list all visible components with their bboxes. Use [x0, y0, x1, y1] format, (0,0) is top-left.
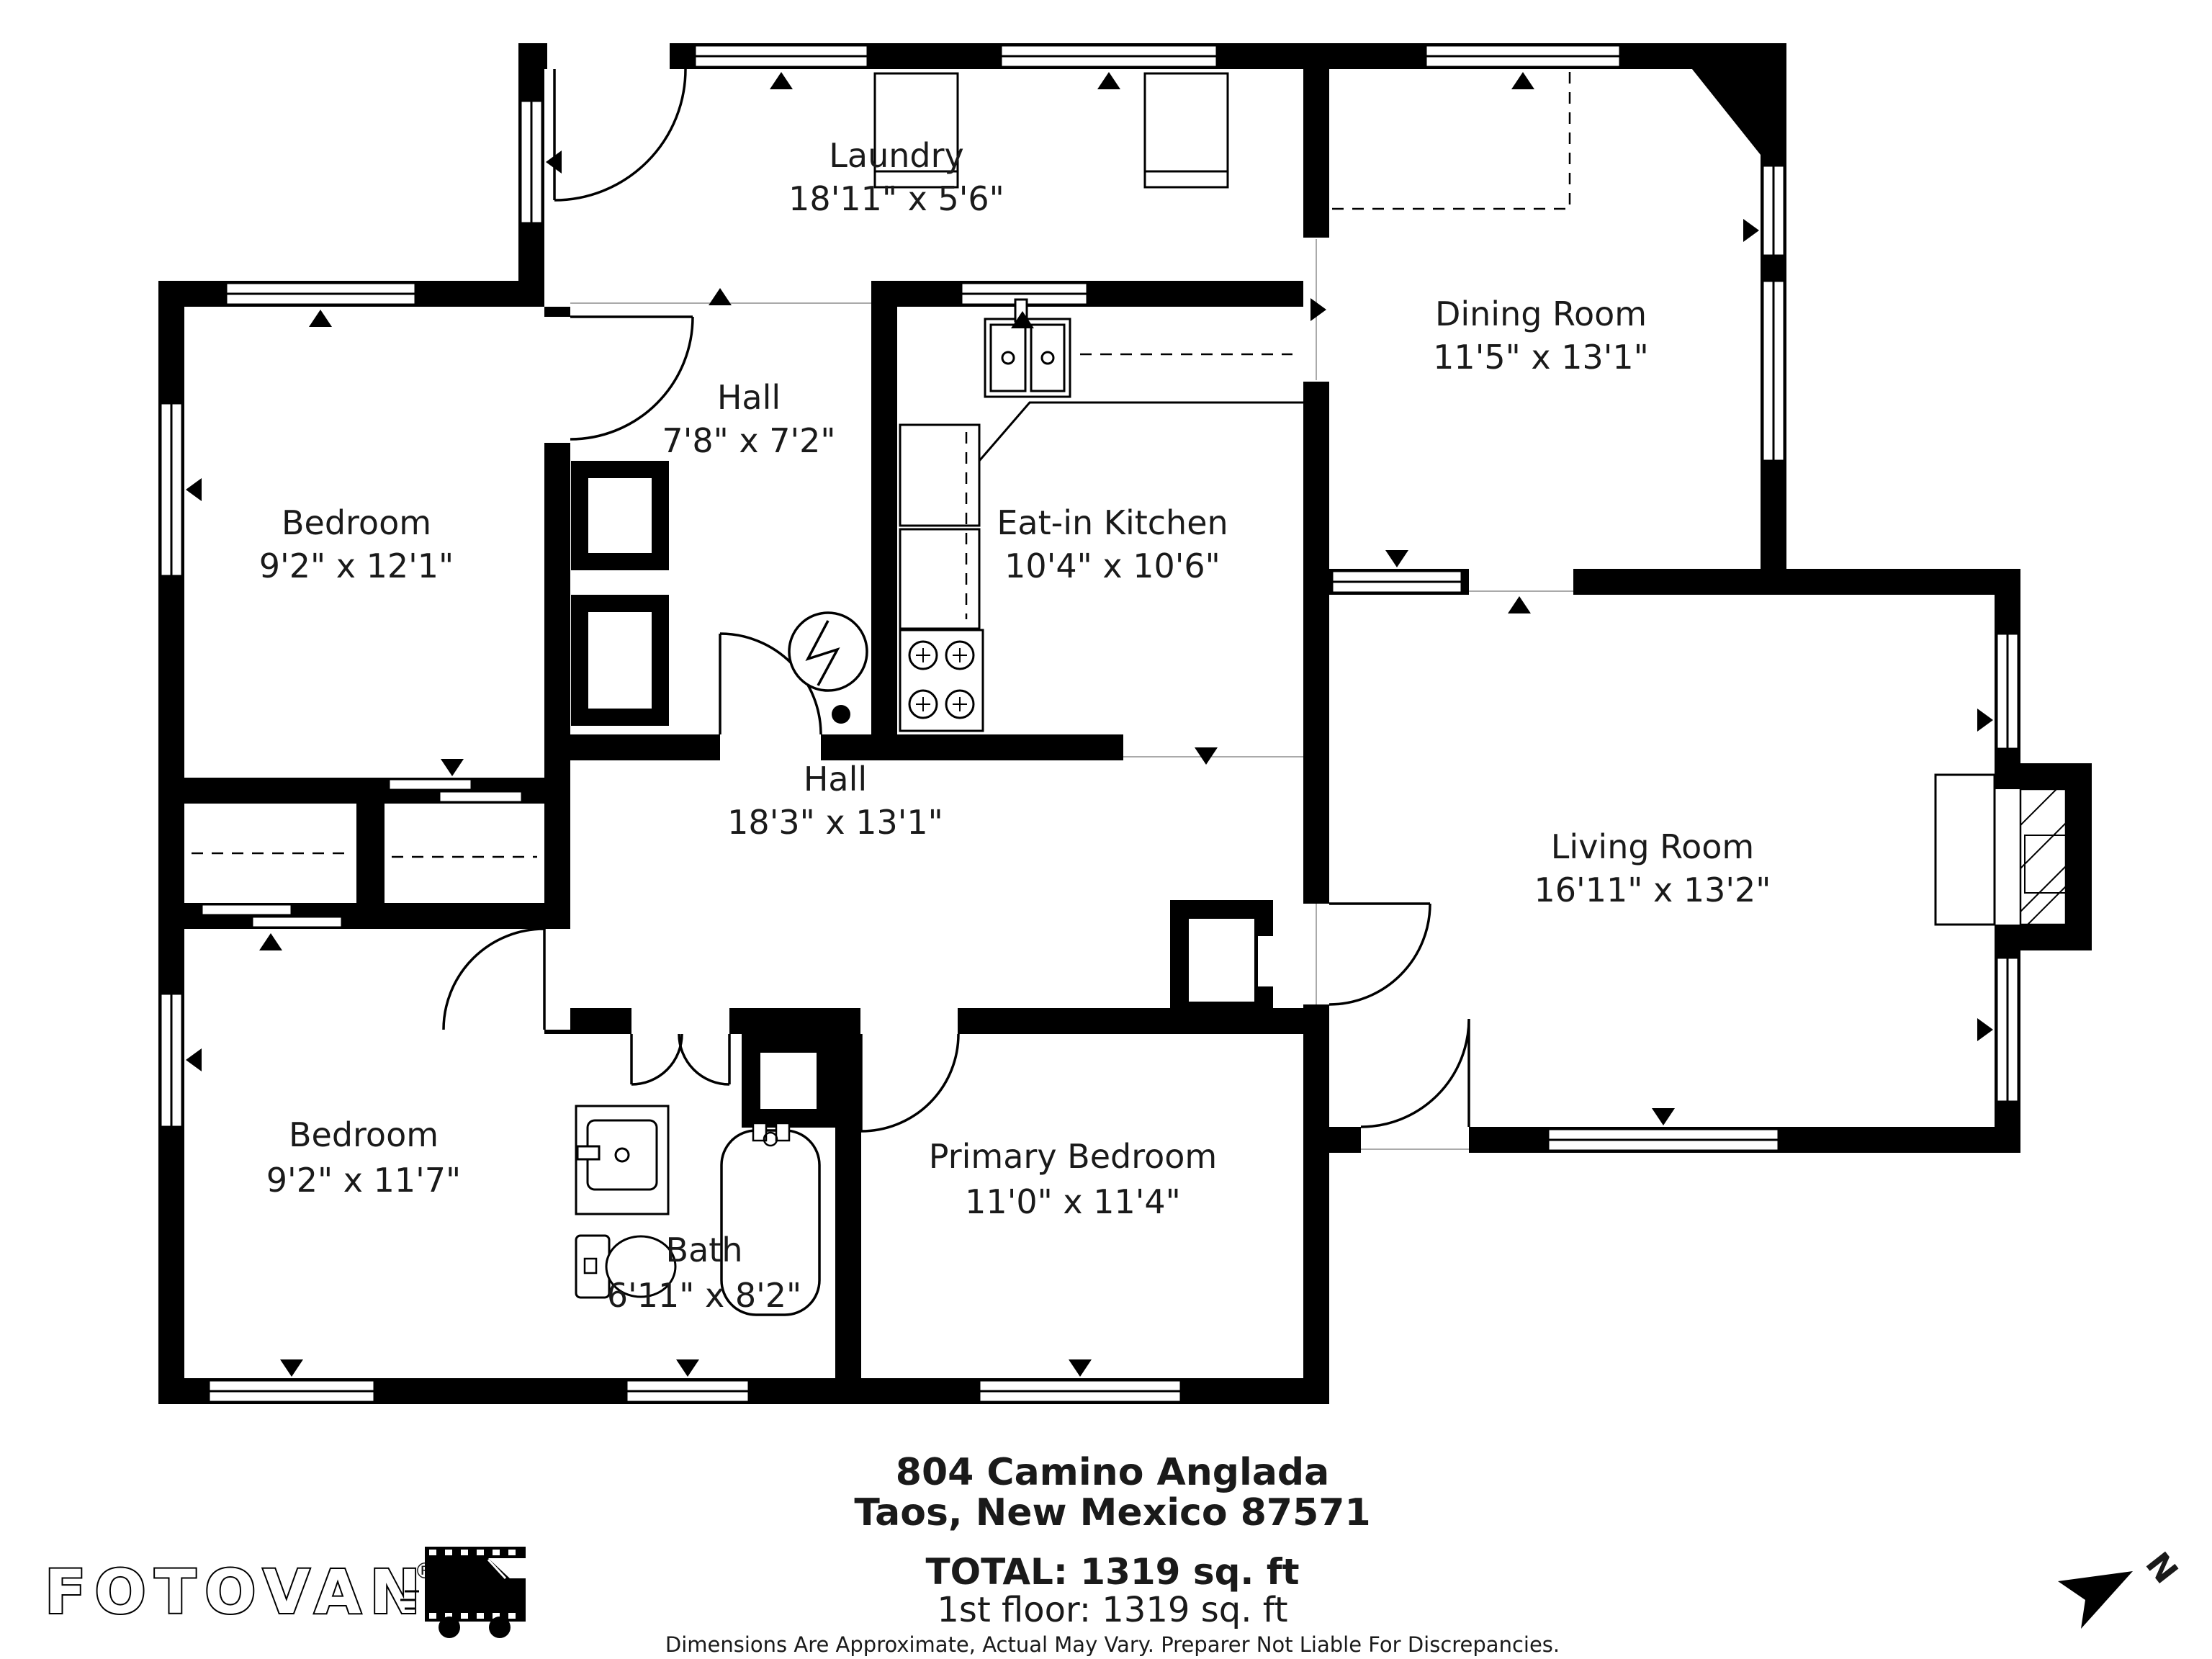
- floor-plan-page: Laundry 18'11" x 5'6" Dining Room 11'5" …: [0, 0, 2212, 1659]
- refrigerator-icon: [900, 529, 979, 629]
- dryer-icon: [1145, 73, 1228, 187]
- hall-closet: [580, 469, 660, 562]
- room-label-hall-main: Hall: [804, 760, 867, 799]
- primary-bedroom-door: [861, 1034, 958, 1131]
- wall-openings: [544, 43, 1469, 1153]
- linen-closet: [751, 1043, 826, 1118]
- disclaimer: Dimensions Are Approximate, Actual May V…: [665, 1632, 1560, 1657]
- room-label-living: Living Room: [1551, 827, 1754, 866]
- room-dims-hall-main: 18'3" x 13'1": [727, 803, 943, 842]
- room-dims-living: 16'11" x 13'2": [1534, 871, 1771, 909]
- room-dims-bath: 6'11" x 8'2": [607, 1276, 801, 1315]
- hall-closet: [580, 603, 660, 717]
- bedroom-lower-door: [444, 929, 544, 1030]
- kitchen-cabinet: [900, 425, 979, 526]
- water-heater-icon: [789, 613, 867, 691]
- room-label-kitchen: Eat-in Kitchen: [997, 503, 1228, 542]
- bath-door-left: [631, 1034, 682, 1084]
- room-label-laundry: Laundry: [829, 136, 963, 175]
- room-dims-bedroom-upper: 9'2" x 12'1": [259, 547, 454, 585]
- door-stop-dot: [832, 705, 850, 724]
- front-door: [1361, 1019, 1469, 1127]
- kitchen-counter: [979, 403, 1303, 461]
- room-dims-kitchen: 10'4" x 10'6": [1004, 547, 1220, 585]
- north-arrow-icon: [2058, 1571, 2133, 1629]
- address-line1: 804 Camino Anglada: [896, 1451, 1329, 1494]
- room-label-primary: Primary Bedroom: [929, 1137, 1217, 1176]
- fireplace-icon: [1935, 775, 2066, 925]
- north-label: N: [2138, 1545, 2185, 1591]
- logo-text: FOTOVAN: [45, 1557, 429, 1627]
- room-label-hall-upper: Hall: [717, 378, 781, 417]
- bay-corner-wall: [1692, 43, 1786, 155]
- room-label-dining: Dining Room: [1435, 295, 1647, 333]
- hall-living-door: [1329, 904, 1430, 1004]
- fotovan-logo: FOTOVAN ®: [45, 1547, 526, 1638]
- room-label-bedroom-upper: Bedroom: [282, 503, 431, 542]
- footer: 804 Camino Anglada Taos, New Mexico 8757…: [665, 1451, 1560, 1657]
- address-line2: Taos, New Mexico 87571: [854, 1491, 1370, 1534]
- laundry-door: [554, 69, 685, 200]
- room-label-bedroom-lower: Bedroom: [289, 1115, 439, 1154]
- room-dims-laundry: 18'11" x 5'6": [788, 179, 1004, 218]
- floor-plan: Laundry 18'11" x 5'6" Dining Room 11'5" …: [0, 0, 2212, 1659]
- bath-door-right: [679, 1034, 729, 1084]
- fireplace-wall: [2066, 763, 2092, 950]
- kitchen-sink-icon: [985, 300, 1070, 397]
- room-dims-hall-upper: 7'8" x 7'2": [662, 421, 835, 460]
- room-label-bath: Bath: [666, 1231, 743, 1269]
- room-dims-dining: 11'5" x 13'1": [1433, 338, 1649, 377]
- entry-closet: [1179, 909, 1264, 1011]
- north-arrow: N: [2058, 1545, 2186, 1629]
- room-dims-primary: 11'0" x 11'4": [965, 1182, 1181, 1221]
- total-area: TOTAL: 1319 sq. ft: [926, 1551, 1300, 1593]
- stove-icon: [900, 630, 983, 731]
- first-floor-area: 1st floor: 1319 sq. ft: [937, 1590, 1287, 1630]
- room-dims-bedroom-lower: 9'2" x 11'7": [266, 1161, 461, 1200]
- bathroom-sink-icon: [576, 1106, 668, 1214]
